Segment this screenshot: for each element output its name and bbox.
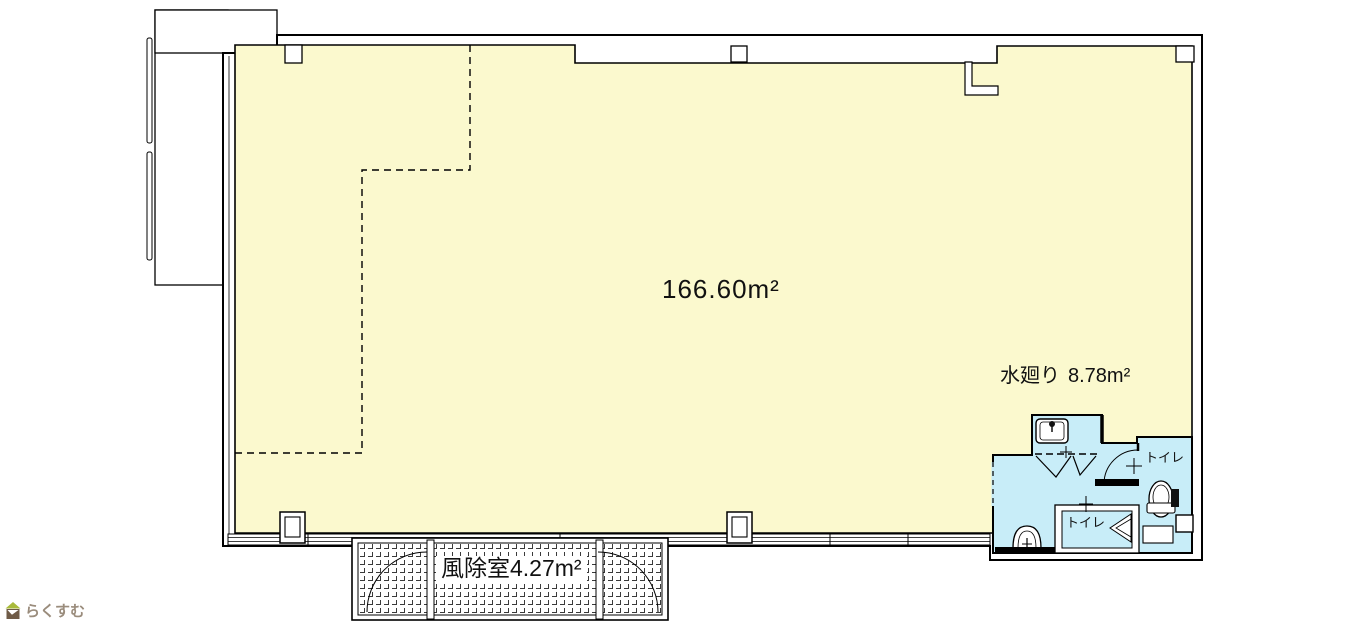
house-icon bbox=[5, 602, 21, 619]
pipe-shaft bbox=[1176, 515, 1193, 532]
wet-area-label: 水廻り8.78m² bbox=[1000, 366, 1130, 386]
main-room-area-label: 166.60m² bbox=[662, 276, 780, 302]
wall-segment bbox=[1095, 479, 1139, 486]
vestibule-value: 4.27m² bbox=[510, 555, 582, 581]
left-panel-slat bbox=[147, 152, 152, 260]
wet-area-name: 水廻り bbox=[1000, 365, 1060, 387]
wall-segment bbox=[995, 547, 1055, 553]
toilet-label-middle: トイレ bbox=[1066, 516, 1105, 529]
vestibule-name: 風除室 bbox=[441, 555, 510, 581]
logo-text: らくすむ bbox=[25, 600, 85, 621]
toilet-label-right: トイレ bbox=[1145, 451, 1184, 464]
site-logo: らくすむ bbox=[5, 600, 85, 621]
vestibule-label: 風除室4.27m² bbox=[436, 556, 587, 581]
sink-fixture bbox=[1036, 419, 1068, 443]
wet-area-value: 8.78m² bbox=[1068, 365, 1130, 387]
left-panel-slat bbox=[147, 38, 152, 143]
floor-plan-page: 166.60m² 水廻り8.78m² トイレ トイレ 風除室4.27m² らくす… bbox=[0, 0, 1350, 627]
floor-plan-drawing bbox=[0, 0, 1350, 627]
